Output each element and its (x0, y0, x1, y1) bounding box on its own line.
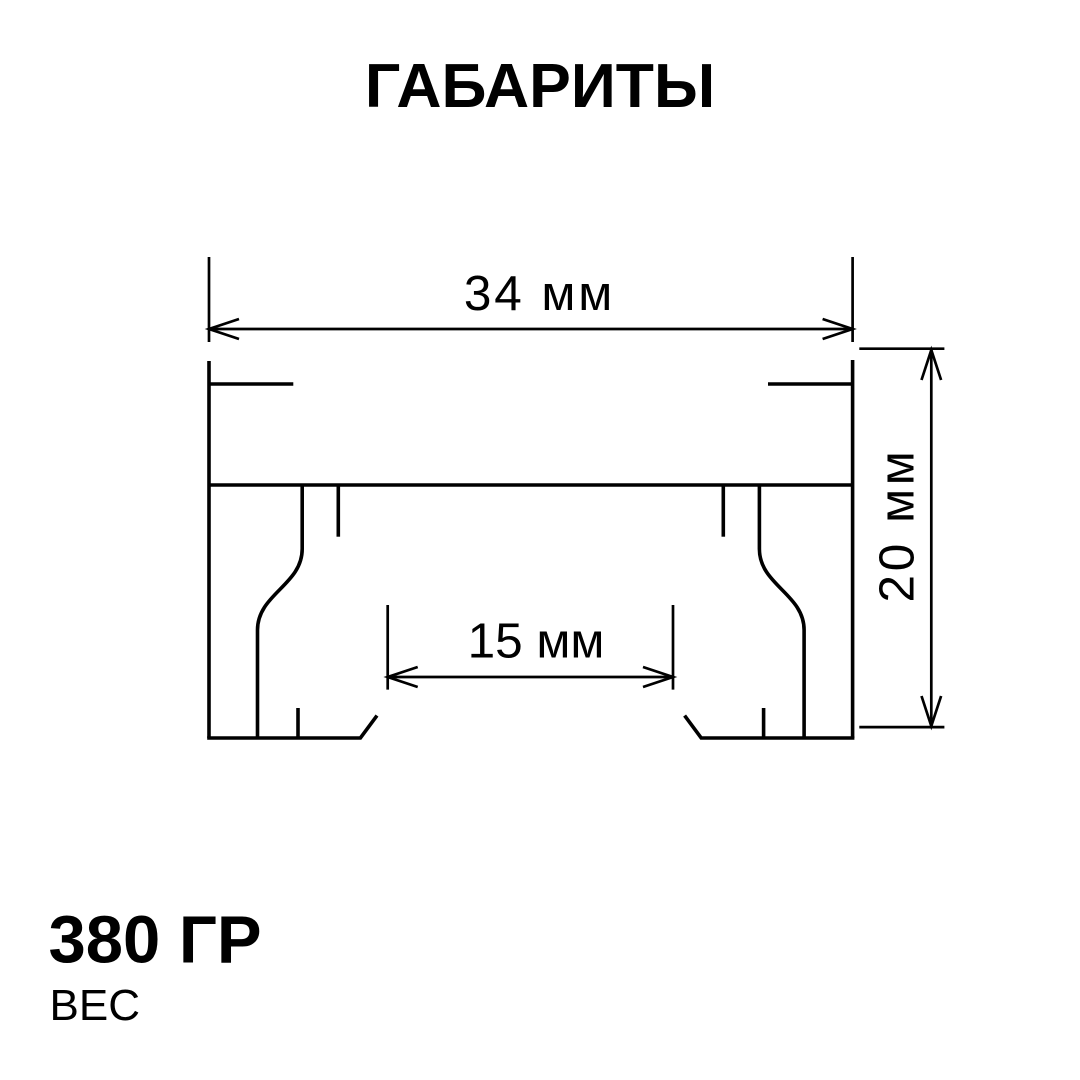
svg-text:ГАБАРИТЫ: ГАБАРИТЫ (365, 51, 715, 121)
svg-text:20 мм: 20 мм (870, 448, 925, 603)
svg-text:15 мм: 15 мм (468, 614, 605, 669)
svg-text:380 ГР: 380 ГР (49, 902, 262, 977)
svg-text:34 мм: 34 мм (464, 266, 615, 321)
svg-text:ВЕС: ВЕС (50, 981, 140, 1030)
